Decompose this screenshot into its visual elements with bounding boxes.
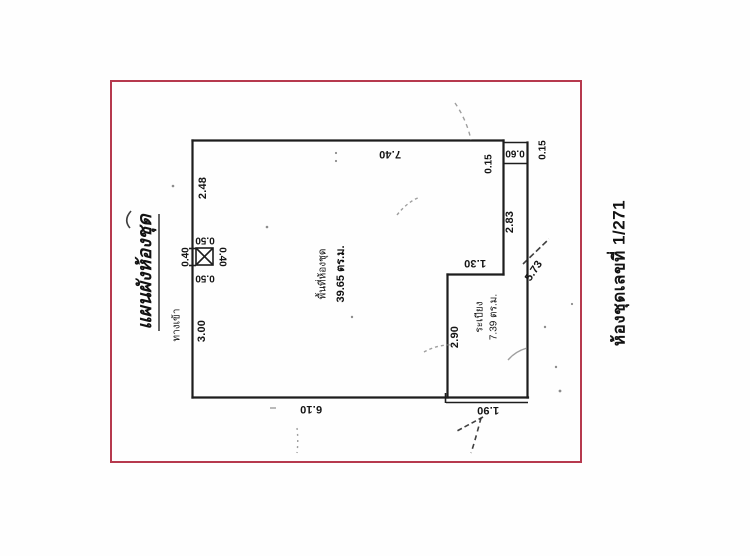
artifact-leader-a: [457, 417, 483, 431]
dim-right-outer: 5.73: [523, 258, 545, 283]
dim-corner-wall-right: 0.15: [538, 140, 549, 160]
artifact-dotted-vertical: [297, 428, 298, 453]
balcony-name: ระเบียง: [474, 301, 486, 332]
dim-shaft-above: 0.50: [195, 235, 215, 246]
artifact-dash-mid: [397, 197, 420, 215]
dimension-labels: 7.40 2.48 0.50 0.40 0.40 0.50 3.00 6.10 …: [181, 140, 550, 416]
page-title-left: แผนผังห้องชุด: [134, 213, 157, 330]
speck-6: [335, 152, 337, 154]
dim-bottom-balcony: 1.90: [477, 404, 499, 416]
floor-plan-canvas: 7.40 2.48 0.50 0.40 0.40 0.50 3.00 6.10 …: [0, 0, 750, 556]
dim-balcony-left: 2.90: [449, 326, 461, 348]
speck-5: [266, 226, 269, 229]
speck-1: [544, 326, 546, 328]
balcony-area-value: 7.39 ตร.ม.: [489, 294, 500, 340]
speck-7: [335, 160, 337, 162]
speck-8: [172, 185, 175, 188]
dim-corner-wall-left: 0.15: [484, 154, 495, 174]
artifact-balcony-curve: [508, 348, 527, 360]
dim-shaft-below: 0.50: [195, 273, 215, 284]
dim-balcony-top: 1.30: [464, 257, 486, 269]
unit-area-value: 39.65 ตร.ม.: [335, 246, 347, 303]
unit-area-label: พื้นที่ห้องชุด: [315, 249, 329, 300]
speck-9: [571, 303, 573, 305]
speck-4: [351, 316, 353, 318]
dim-bottom-main: 6.10: [300, 403, 322, 415]
scanned-floor-plan-page: 7.40 2.48 0.50 0.40 0.40 0.50 3.00 6.10 …: [0, 0, 750, 556]
page-title-right: ห้องชุดเลขที่ 1/271: [607, 200, 630, 346]
dim-right-inner: 2.83: [504, 211, 516, 233]
dim-top: 7.40: [379, 148, 401, 160]
speck-3: [559, 390, 562, 393]
dim-left-lower: 3.00: [196, 320, 208, 342]
shaft-hatched-box: [196, 248, 213, 265]
speck-2: [555, 366, 557, 368]
dim-corner-column: 0.60: [505, 148, 525, 159]
dim-shaft-left: 0.40: [181, 247, 192, 267]
entrance-label: ทางเข้า: [171, 309, 183, 342]
unit-walls: [189, 141, 528, 404]
dim-shaft-right: 0.40: [217, 247, 228, 267]
dim-left-upper: 2.48: [197, 177, 209, 199]
artifact-curve-top: [455, 103, 471, 140]
handwriting-flourish: [127, 211, 131, 228]
